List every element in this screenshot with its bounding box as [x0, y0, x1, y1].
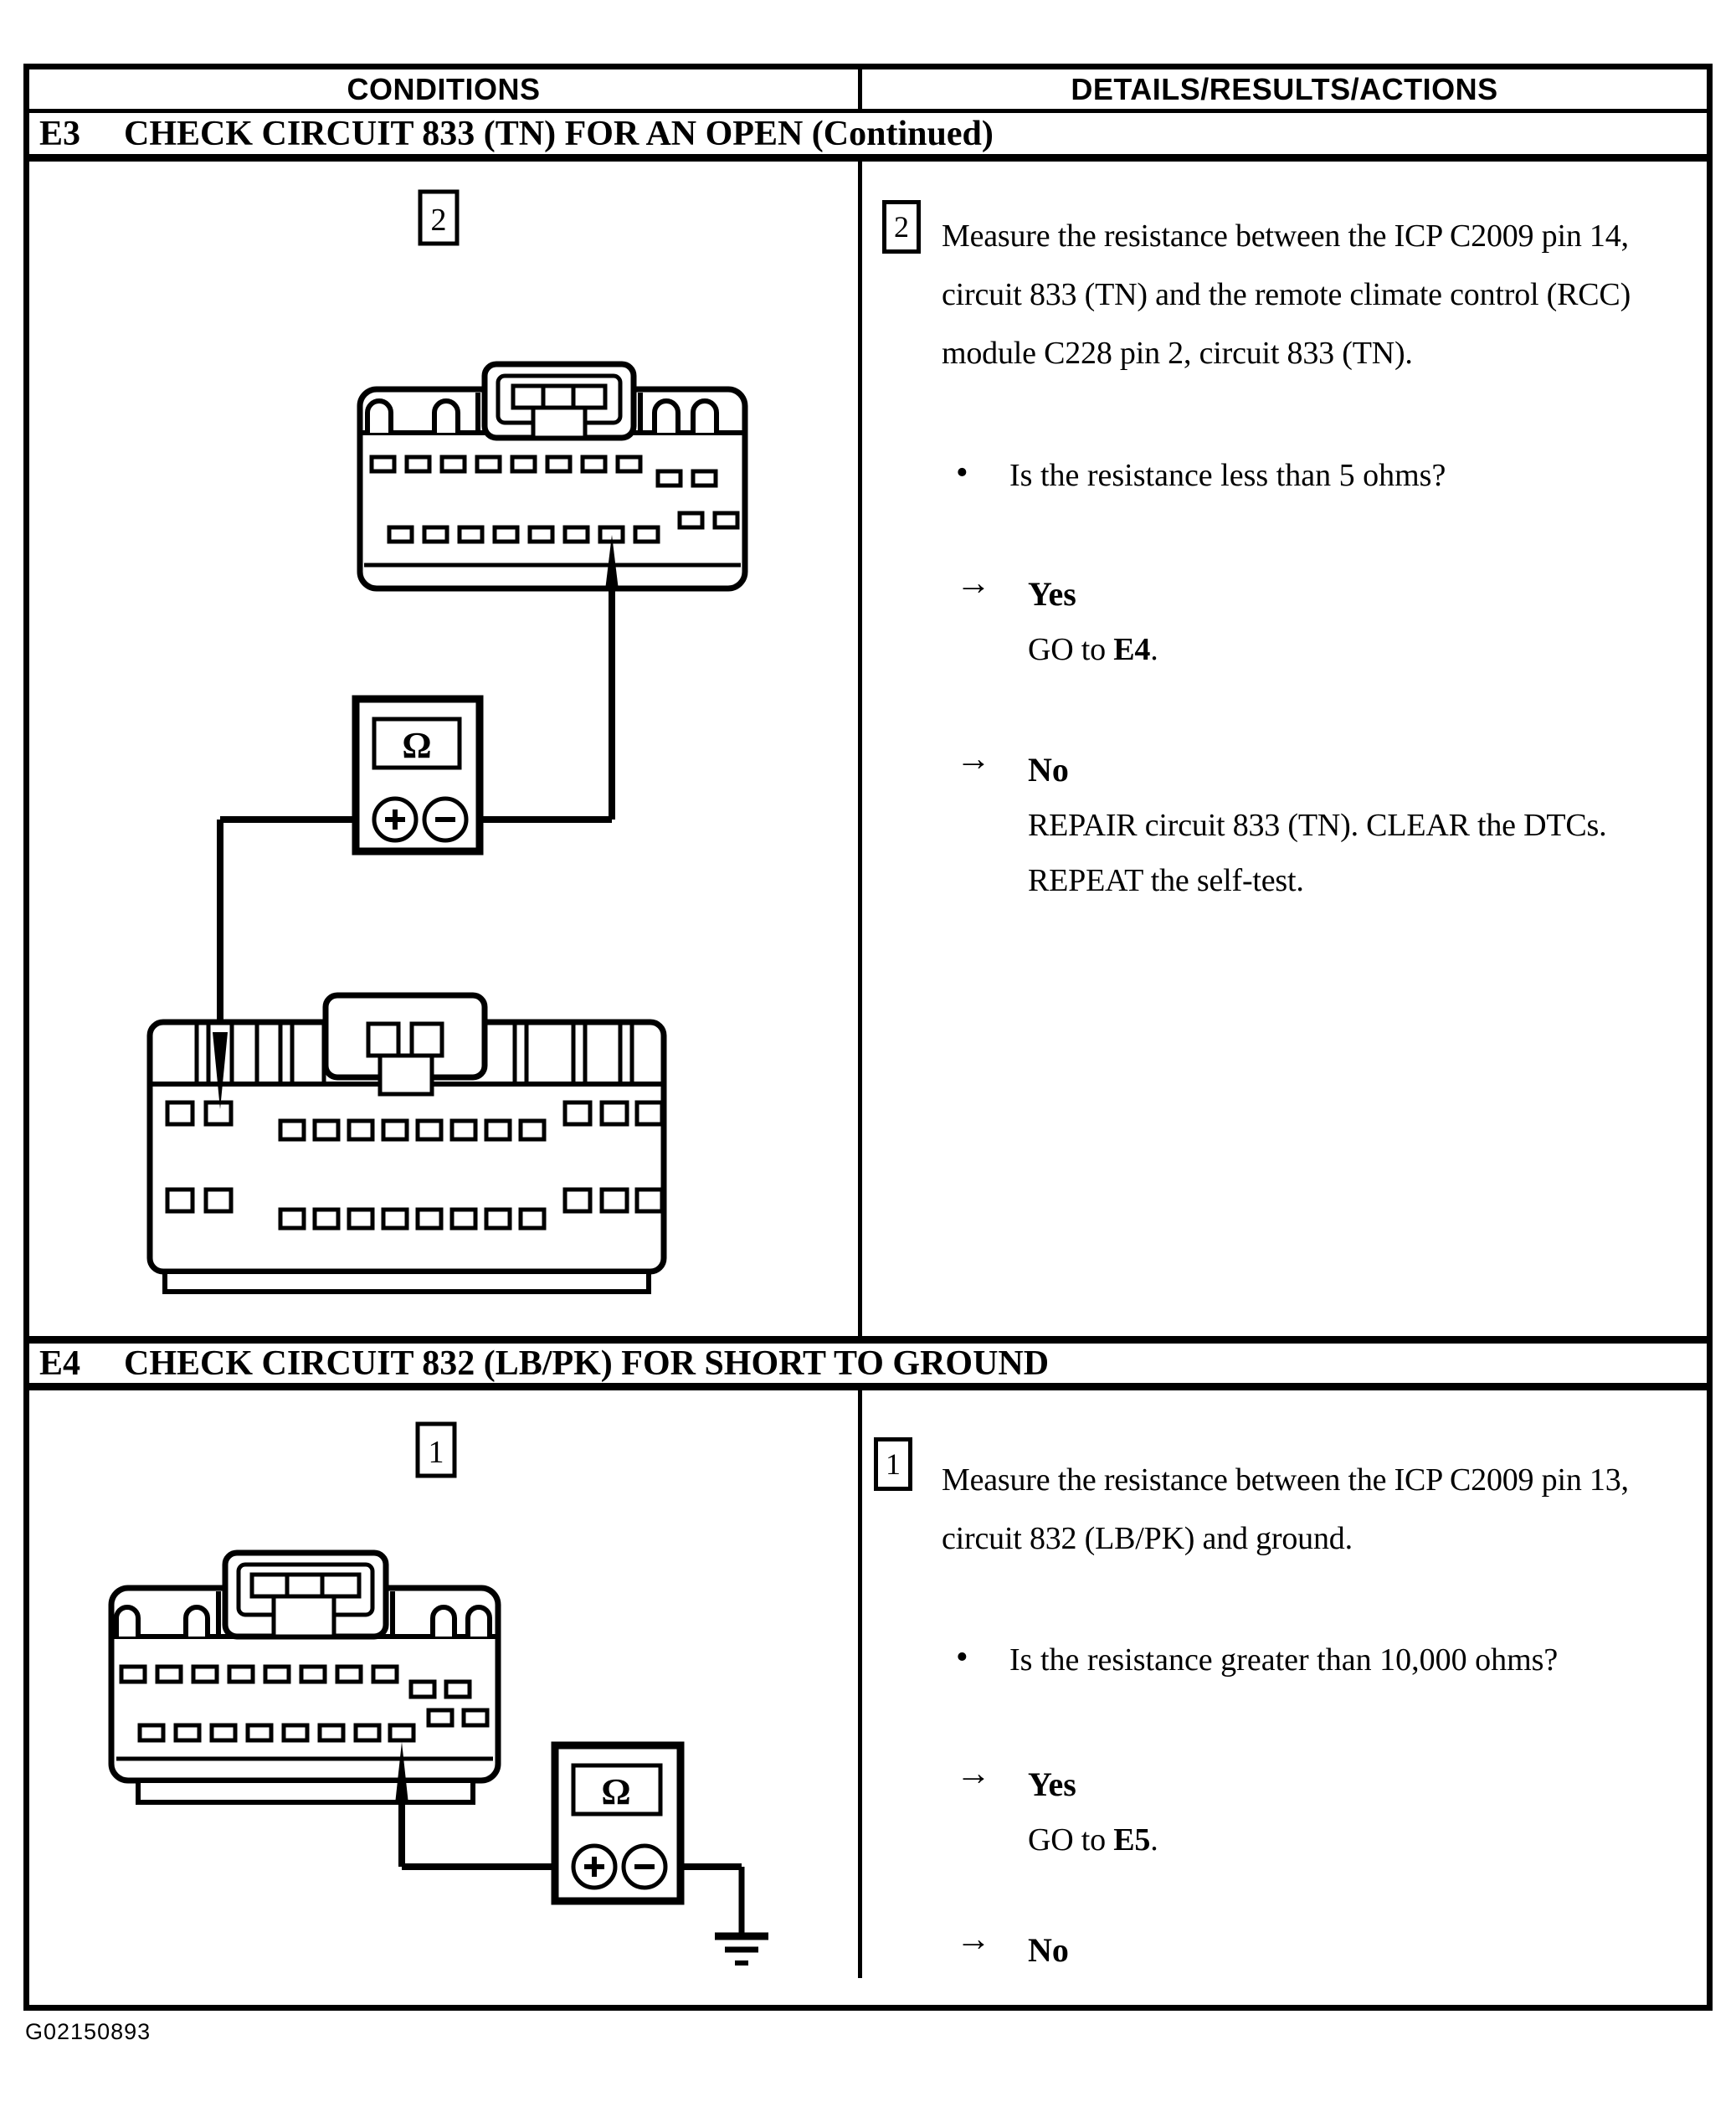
section-e3-content-row: 2: [29, 162, 1707, 1344]
svg-text:2: 2: [431, 203, 447, 238]
step-instruction: Measure the resistance between the ICP C…: [942, 207, 1699, 383]
step-number-badge: 1: [874, 1437, 912, 1491]
section-e4-id: E4: [39, 1344, 80, 1384]
table-header-row: CONDITIONS DETAILS/RESULTS/ACTIONS: [29, 69, 1707, 113]
step-instruction: Measure the resistance between the ICP C…: [942, 1451, 1699, 1568]
e3-diagram-step-badge: 2: [420, 192, 457, 244]
icp-connector-graphic: [111, 1553, 498, 1802]
yes-result: Yes GO to E5.: [1028, 1757, 1707, 1868]
connector-latch: [326, 995, 485, 1094]
pinpoint-test-table: CONDITIONS DETAILS/RESULTS/ACTIONS E3 CH…: [23, 64, 1713, 2011]
no-action: REPAIR circuit 833 (TN). CLEAR the DTCs.…: [1028, 808, 1606, 898]
question-text: Is the resistance greater than 10,000 oh…: [1009, 1631, 1696, 1689]
section-e4-title-row: E4 CHECK CIRCUIT 832 (LB/PK) FOR SHORT T…: [29, 1344, 1707, 1390]
section-e4-title: CHECK CIRCUIT 832 (LB/PK) FOR SHORT TO G…: [124, 1344, 1049, 1384]
bullet-icon: •: [956, 1637, 968, 1678]
ground-icon: [715, 1867, 768, 1963]
e4-wiring-diagram: 1: [29, 1390, 862, 1978]
question-text: Is the resistance less than 5 ohms?: [1009, 446, 1696, 505]
ohmmeter-icon: Ω: [356, 699, 480, 851]
bullet-icon: •: [956, 453, 968, 493]
ohmmeter-icon: Ω: [555, 1745, 681, 1901]
ohm-symbol: Ω: [601, 1771, 630, 1812]
section-e3-title: CHECK CIRCUIT 833 (TN) FOR AN OPEN (Cont…: [124, 114, 994, 154]
section-e3-title-row: E3 CHECK CIRCUIT 833 (TN) FOR AN OPEN (C…: [29, 113, 1707, 162]
connector-latch: [225, 1553, 386, 1637]
result-arrow-icon: →: [956, 1754, 991, 1794]
section-e4-content-row: 1: [29, 1390, 1707, 1978]
e4-details-cell: 1 Measure the resistance between the ICP…: [862, 1390, 1707, 1978]
yes-label: Yes: [1028, 567, 1707, 622]
yes-action: GO to E4.: [1028, 632, 1158, 667]
icp-connector-graphic: [360, 364, 745, 588]
e4-diagram-step-badge: 1: [418, 1424, 455, 1476]
e3-wiring-diagram: 2: [29, 162, 862, 1336]
yes-result: Yes GO to E4.: [1028, 567, 1707, 677]
yes-label: Yes: [1028, 1757, 1707, 1812]
ohm-symbol: Ω: [402, 725, 431, 766]
no-result: No REPAIR circuit 832 (LB/PK). CLEAR the…: [1028, 1923, 1707, 1978]
svg-text:1: 1: [429, 1435, 444, 1470]
e3-conditions-cell: 2: [29, 162, 862, 1336]
connector-latch: [485, 364, 634, 438]
step-number-badge: 2: [882, 200, 921, 254]
yes-action: GO to E5.: [1028, 1822, 1158, 1858]
result-arrow-icon: →: [956, 563, 991, 604]
no-label: No: [1028, 743, 1707, 798]
result-arrow-icon: →: [956, 1919, 991, 1960]
no-result: No REPAIR circuit 833 (TN). CLEAR the DT…: [1028, 743, 1707, 908]
details-column-header: DETAILS/RESULTS/ACTIONS: [862, 69, 1707, 109]
no-label: No: [1028, 1923, 1707, 1978]
section-e3-id: E3: [39, 114, 80, 154]
e4-conditions-cell: 1: [29, 1390, 862, 1978]
e3-details-cell: 2 Measure the resistance between the ICP…: [862, 162, 1707, 1336]
result-arrow-icon: →: [956, 739, 991, 779]
figure-code: G02150893: [25, 2019, 151, 2045]
conditions-column-header: CONDITIONS: [29, 69, 862, 109]
